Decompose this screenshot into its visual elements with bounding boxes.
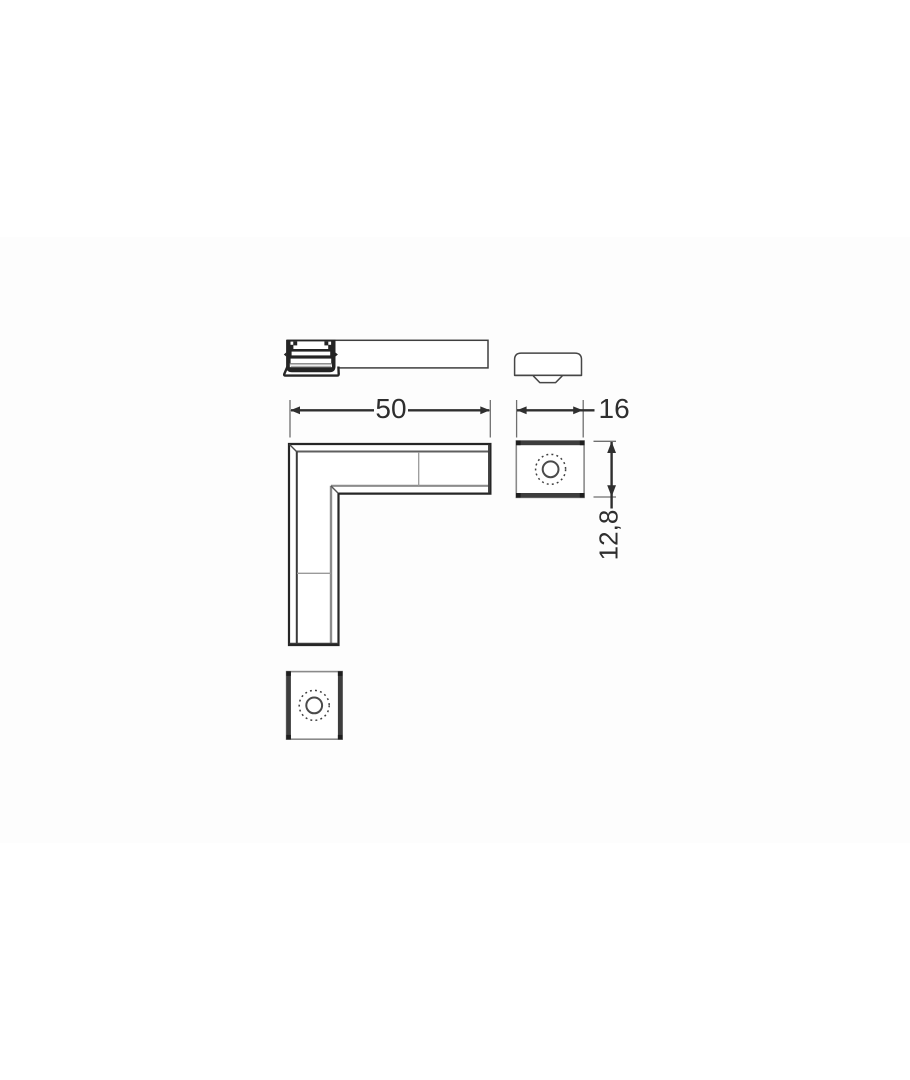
svg-text:50: 50: [375, 393, 406, 424]
svg-text:12,8: 12,8: [594, 510, 624, 561]
svg-text:16: 16: [599, 393, 630, 424]
